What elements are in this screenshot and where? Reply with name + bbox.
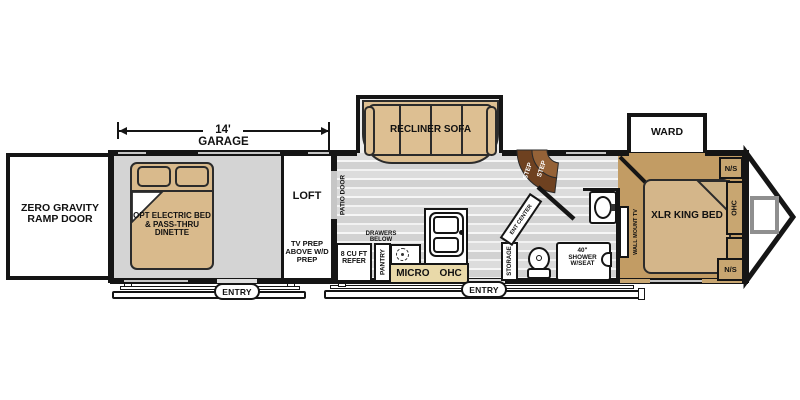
nightstand-bottom-label: N/S [724,265,737,274]
garage-entry-label: ENTRY [222,287,252,297]
wall-tv [619,206,629,258]
vanity-faucet-icon [611,204,615,211]
toilet-flush-icon [536,255,542,261]
nightstand-top: N/S [719,157,743,179]
awning-rail [120,286,300,290]
garage-bed-label: OPT ELECTRIC BED & PASS-THRU DINETTE [133,212,211,238]
toilet-tank [527,268,551,279]
loft-label: LOFT [283,191,331,203]
nightstand-top-label: N/S [725,164,738,173]
patio-door-label: PATIO DOOR [340,175,347,215]
refrigerator-label: 8 CU FT REFER [337,251,371,266]
rail-post [124,283,132,287]
storage-label: STORAGE [507,246,513,276]
micro-label: MICRO [396,268,429,279]
shower-seat-icon [601,252,612,267]
ramp-door-label: ZERO GRAVITY RAMP DOOR [14,203,106,225]
sink-bowl [433,237,459,253]
rail-post [287,283,295,287]
overhead-cabinet-label: OHC [732,200,739,216]
king-bed-label: XLR KING BED [648,211,726,222]
faucet-icon [459,230,464,235]
rail-endcap [638,288,645,300]
loft-prep-label: TV PREP ABOVE W/D PREP [285,240,329,264]
burner-center-icon [401,253,404,256]
hitch [752,198,777,232]
pantry-label: PANTRY [379,249,386,275]
main-entry-badge: ENTRY [461,281,507,298]
rail-post [338,283,346,287]
sink-bowl [433,216,459,234]
micro-ohc-banner: MICRO OHC [389,263,469,284]
awning-rail [112,291,306,299]
nightstand-bottom: N/S [717,258,744,281]
shower-label: 40" SHOWER W/SEAT [566,248,599,268]
main-entry-label: ENTRY [469,285,499,295]
floorplan-canvas: 14' GARAGE WARD STEP STEP ZERO GRAVIT [0,0,800,400]
ohc-label: OHC [440,268,462,279]
bath-door-swing [538,187,574,219]
wall-tv-label: WALL MOUNT TV [633,209,639,255]
vanity-basin [594,196,612,219]
garage-entry-badge: ENTRY [214,283,260,300]
sofa-label: RECLINER SOFA [368,125,493,136]
drawers-below-label: DRAWERS BELOW [362,231,400,244]
